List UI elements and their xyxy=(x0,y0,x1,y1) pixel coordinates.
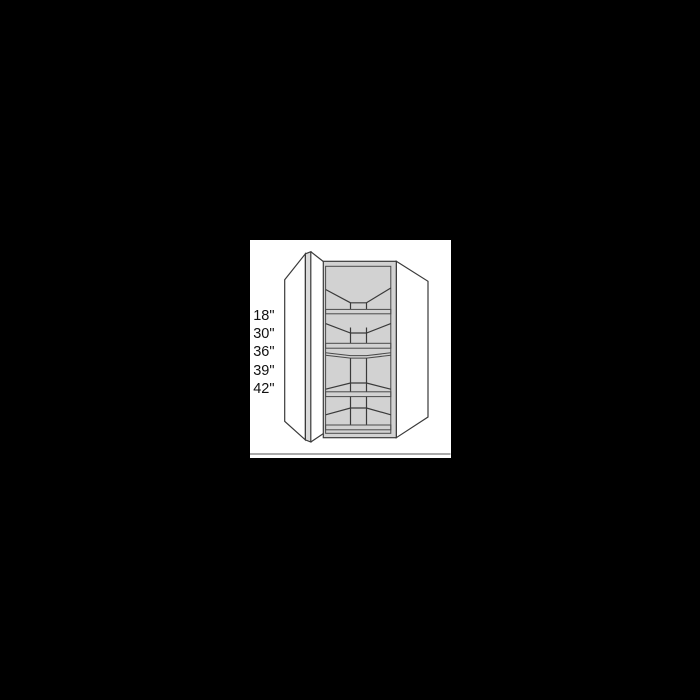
cabinet-line-drawing xyxy=(250,240,451,458)
page-background: 18" 30" 36" 39" 42" xyxy=(0,0,700,700)
product-diagram-panel: 18" 30" 36" 39" 42" xyxy=(250,240,451,458)
door-hinge-bottom-line xyxy=(311,434,324,442)
open-door-panel xyxy=(285,254,306,440)
door-hinge-top-line xyxy=(311,252,324,262)
right-side-panel xyxy=(396,261,428,437)
face-frame xyxy=(323,261,396,437)
door-edge-strip xyxy=(305,252,310,442)
